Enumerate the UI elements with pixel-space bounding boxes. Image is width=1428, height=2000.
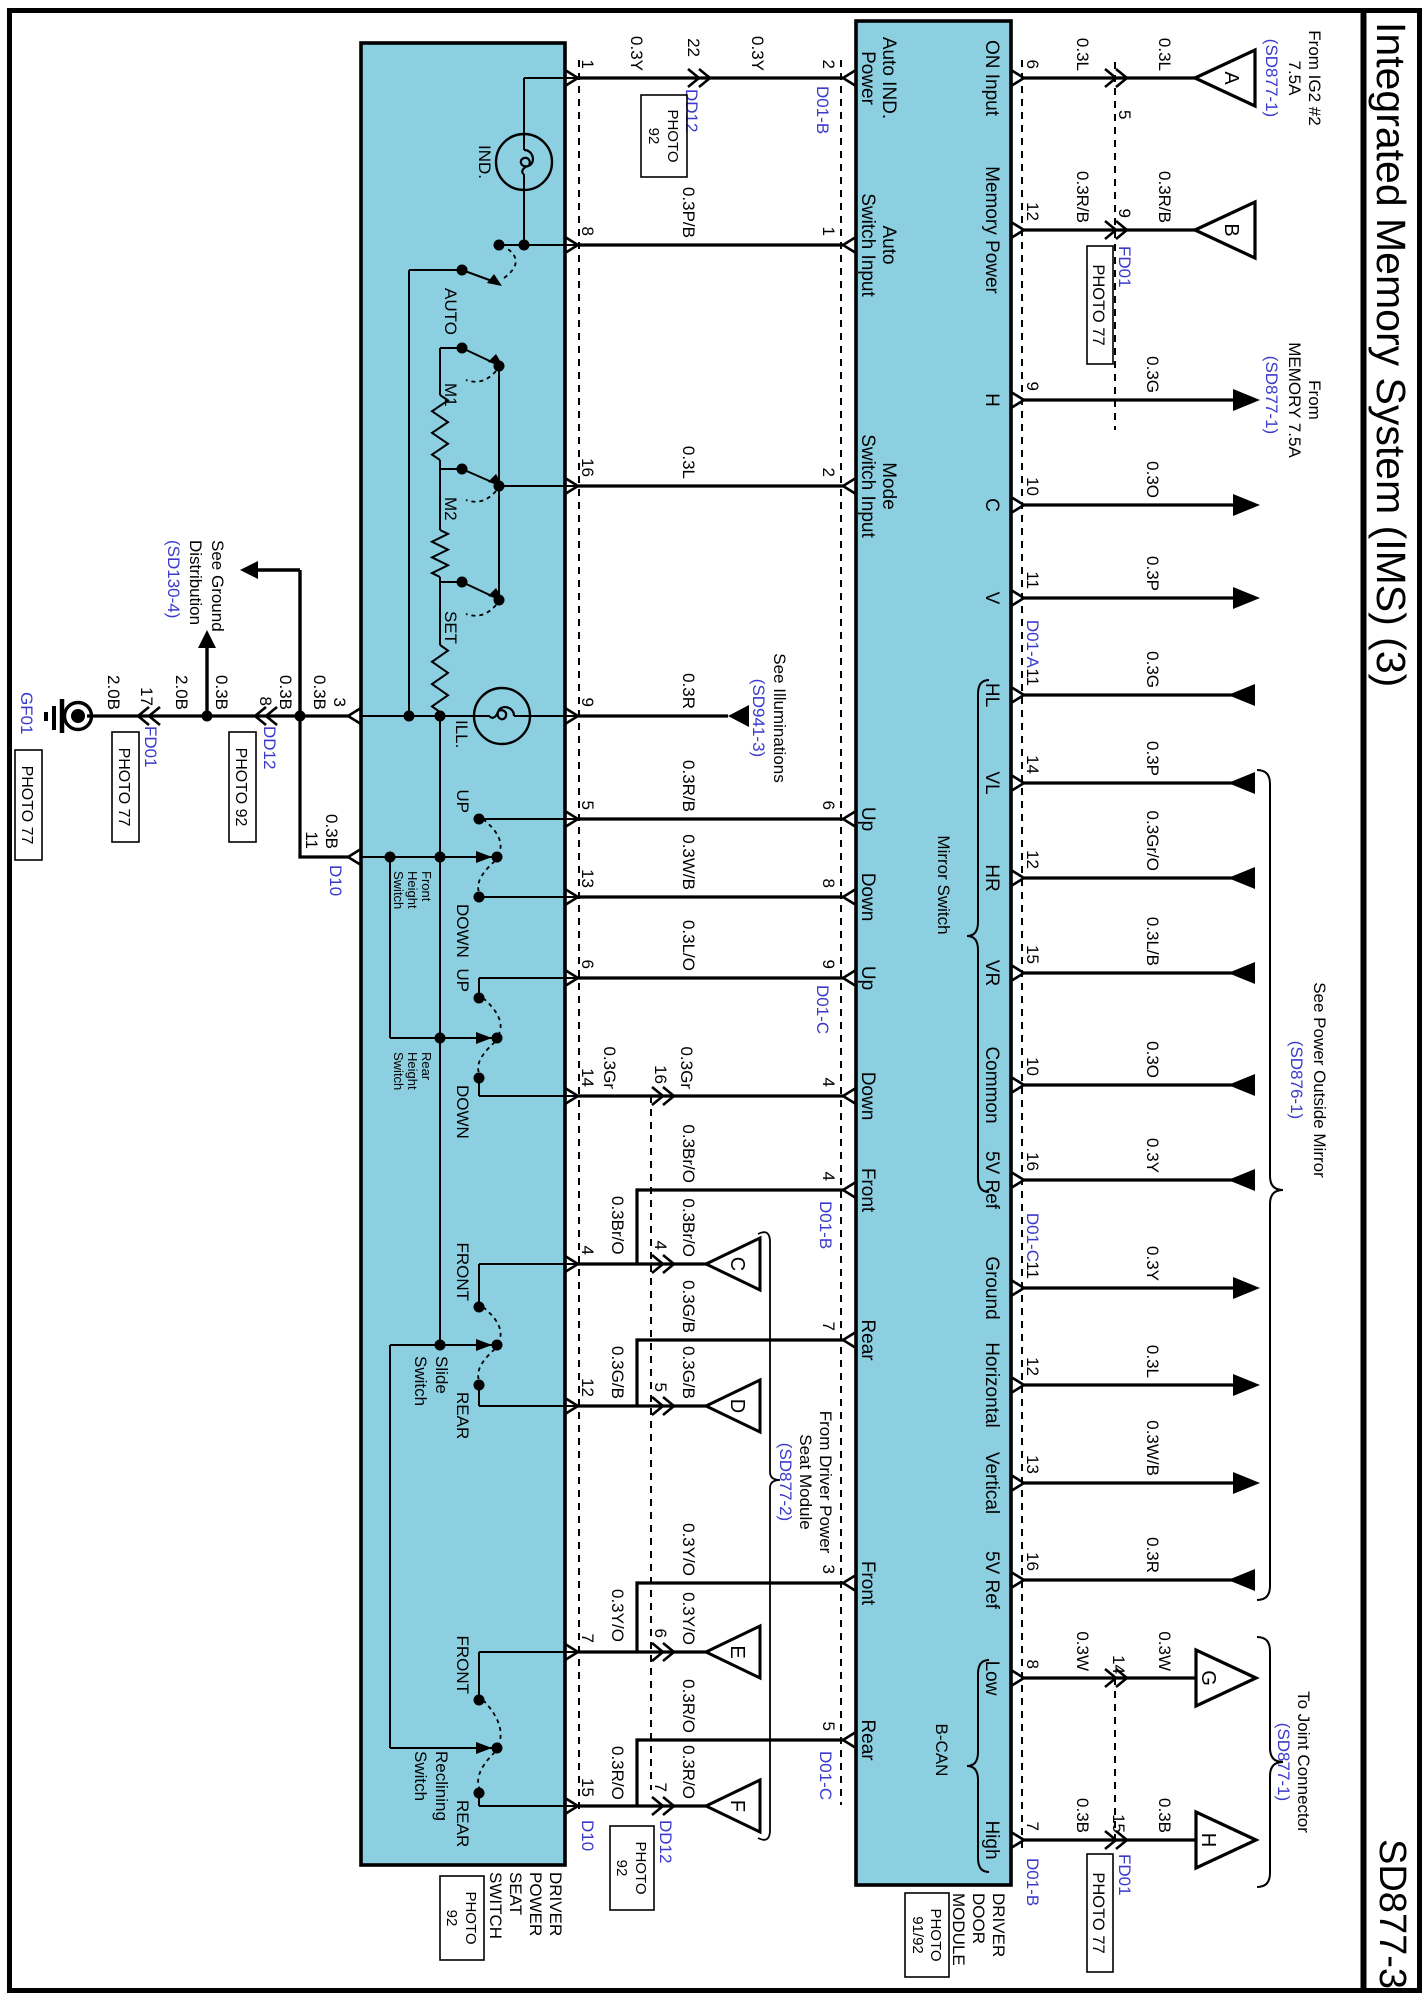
svg-text:HL: HL bbox=[981, 683, 1002, 707]
svg-text:7: 7 bbox=[578, 1634, 597, 1643]
svg-text:1: 1 bbox=[578, 60, 597, 69]
svg-text:Down: Down bbox=[857, 873, 878, 922]
svg-text:FD01: FD01 bbox=[141, 726, 160, 768]
svg-text:PHOTO 92: PHOTO 92 bbox=[232, 748, 249, 827]
svg-text:(SD877-1): (SD877-1) bbox=[1262, 356, 1281, 434]
svg-text:Vertical: Vertical bbox=[981, 1452, 1002, 1514]
svg-text:DRIVER: DRIVER bbox=[546, 1872, 565, 1936]
svg-text:0.3R: 0.3R bbox=[1143, 1537, 1162, 1573]
svg-text:IND.: IND. bbox=[475, 145, 494, 179]
svg-text:0.3L: 0.3L bbox=[1143, 1345, 1162, 1378]
svg-text:12: 12 bbox=[1023, 1357, 1042, 1376]
svg-text:0.3O: 0.3O bbox=[1143, 461, 1162, 498]
svg-text:8: 8 bbox=[1023, 1660, 1042, 1669]
svg-text:FRONT: FRONT bbox=[453, 1242, 472, 1301]
svg-text:2.0B: 2.0B bbox=[104, 675, 123, 710]
svg-text:PHOTO: PHOTO bbox=[927, 1908, 944, 1961]
svg-text:11: 11 bbox=[1023, 571, 1042, 589]
svg-text:MEMORY 7.5A: MEMORY 7.5A bbox=[1285, 342, 1304, 458]
svg-text:A: A bbox=[1220, 71, 1242, 85]
svg-text:0.3B: 0.3B bbox=[1155, 1798, 1174, 1833]
svg-text:0.3G/B: 0.3G/B bbox=[608, 1346, 627, 1399]
svg-text:GF01: GF01 bbox=[17, 692, 36, 735]
svg-text:0.3Y/O: 0.3Y/O bbox=[679, 1523, 698, 1576]
svg-text:SEAT: SEAT bbox=[506, 1872, 525, 1915]
svg-text:0.3Br/O: 0.3Br/O bbox=[608, 1196, 627, 1255]
svg-text:See Illuminations: See Illuminations bbox=[770, 653, 789, 782]
svg-text:ILL.: ILL. bbox=[452, 720, 471, 748]
svg-text:Up: Up bbox=[857, 966, 878, 990]
svg-text:0.3Gr: 0.3Gr bbox=[677, 1046, 696, 1089]
svg-text:12: 12 bbox=[578, 1378, 597, 1397]
svg-text:9: 9 bbox=[819, 960, 838, 969]
svg-text:0.3B: 0.3B bbox=[1073, 1798, 1092, 1833]
svg-text:SET: SET bbox=[441, 611, 460, 644]
svg-text:14: 14 bbox=[578, 1068, 597, 1087]
svg-text:2: 2 bbox=[819, 468, 838, 477]
svg-text:PHOTO: PHOTO bbox=[632, 1841, 649, 1894]
svg-text:ON Input: ON Input bbox=[981, 40, 1002, 117]
svg-text:0.3Y: 0.3Y bbox=[1143, 1138, 1162, 1173]
svg-text:G: G bbox=[1197, 1670, 1219, 1686]
svg-text:2.0B: 2.0B bbox=[172, 675, 191, 710]
svg-text:DOWN: DOWN bbox=[453, 1085, 472, 1139]
svg-text:5V Ref: 5V Ref bbox=[981, 1151, 1002, 1210]
svg-text:Rear: Rear bbox=[419, 1052, 434, 1081]
svg-text:13: 13 bbox=[578, 869, 597, 888]
svg-text:0.3W/B: 0.3W/B bbox=[679, 834, 698, 890]
svg-text:12: 12 bbox=[1023, 850, 1042, 869]
svg-text:0.3G/B: 0.3G/B bbox=[679, 1346, 698, 1399]
svg-text:0.3R/B: 0.3R/B bbox=[1073, 171, 1092, 223]
svg-text:D10: D10 bbox=[578, 1820, 597, 1851]
svg-text:Common: Common bbox=[981, 1046, 1002, 1123]
svg-text:6: 6 bbox=[651, 1629, 670, 1638]
svg-text:Power: Power bbox=[857, 51, 878, 106]
svg-text:7.5A: 7.5A bbox=[1285, 61, 1304, 97]
svg-text:0.3Y: 0.3Y bbox=[748, 36, 767, 71]
svg-text:E: E bbox=[726, 1645, 748, 1658]
svg-text:V: V bbox=[981, 592, 1002, 605]
svg-text:UP: UP bbox=[453, 968, 472, 992]
svg-text:HR: HR bbox=[981, 864, 1002, 891]
svg-text:5: 5 bbox=[651, 1383, 670, 1392]
svg-text:0.3G/B: 0.3G/B bbox=[679, 1280, 698, 1333]
svg-text:Slide: Slide bbox=[432, 1356, 451, 1394]
svg-text:D01-B: D01-B bbox=[813, 86, 832, 134]
svg-text:From IG2 #2: From IG2 #2 bbox=[1305, 30, 1324, 125]
svg-text:PHOTO 77: PHOTO 77 bbox=[115, 748, 132, 827]
svg-text:22: 22 bbox=[684, 38, 703, 57]
svg-text:5V Ref: 5V Ref bbox=[981, 1551, 1002, 1610]
svg-text:0.3R/B: 0.3R/B bbox=[679, 760, 698, 812]
svg-text:7: 7 bbox=[651, 1783, 670, 1792]
svg-text:0.3G: 0.3G bbox=[1143, 356, 1162, 393]
svg-text:0.3O: 0.3O bbox=[1143, 1041, 1162, 1078]
svg-text:0.3P: 0.3P bbox=[1143, 741, 1162, 776]
svg-text:9: 9 bbox=[578, 698, 597, 707]
svg-text:(SD130-4): (SD130-4) bbox=[164, 540, 183, 618]
svg-text:D01-B: D01-B bbox=[1023, 1858, 1042, 1906]
svg-text:Front: Front bbox=[419, 871, 434, 902]
svg-text:0.3Gr: 0.3Gr bbox=[600, 1046, 619, 1089]
svg-text:10: 10 bbox=[1023, 1057, 1042, 1076]
svg-text:92: 92 bbox=[645, 128, 662, 145]
svg-text:Rear: Rear bbox=[857, 1719, 878, 1761]
svg-text:9: 9 bbox=[1115, 209, 1134, 218]
svg-text:16: 16 bbox=[651, 1065, 670, 1084]
svg-text:M2: M2 bbox=[441, 497, 460, 521]
svg-text:B: B bbox=[1220, 223, 1242, 236]
svg-text:D10: D10 bbox=[326, 865, 345, 896]
svg-text:1: 1 bbox=[819, 227, 838, 236]
svg-text:16: 16 bbox=[578, 458, 597, 477]
svg-text:2: 2 bbox=[819, 60, 838, 69]
svg-text:Switch: Switch bbox=[391, 871, 406, 909]
svg-text:Reclining: Reclining bbox=[432, 1751, 451, 1821]
svg-text:Auto IND.: Auto IND. bbox=[878, 37, 899, 119]
svg-text:15: 15 bbox=[578, 1778, 597, 1797]
svg-text:0.3P: 0.3P bbox=[1143, 556, 1162, 591]
svg-text:0.3W: 0.3W bbox=[1073, 1631, 1092, 1671]
svg-text:92: 92 bbox=[613, 1860, 630, 1877]
svg-text:16: 16 bbox=[1023, 1152, 1042, 1171]
svg-text:UP: UP bbox=[453, 789, 472, 813]
svg-text:17: 17 bbox=[137, 687, 156, 706]
svg-text:4: 4 bbox=[578, 1246, 597, 1255]
svg-text:POWER: POWER bbox=[526, 1872, 545, 1936]
svg-text:0.3Y: 0.3Y bbox=[1143, 1246, 1162, 1281]
svg-text:0.3R/O: 0.3R/O bbox=[679, 1745, 698, 1799]
svg-text:13: 13 bbox=[1023, 1455, 1042, 1474]
svg-text:DD12: DD12 bbox=[656, 1820, 675, 1863]
svg-text:3: 3 bbox=[819, 1565, 838, 1574]
svg-text:B-CAN: B-CAN bbox=[932, 1724, 951, 1777]
svg-text:0.3Br/O: 0.3Br/O bbox=[679, 1124, 698, 1183]
svg-text:D01-A: D01-A bbox=[1023, 620, 1042, 669]
svg-text:14: 14 bbox=[1109, 1655, 1128, 1674]
svg-text:PHOTO 77: PHOTO 77 bbox=[18, 766, 35, 845]
svg-text:6: 6 bbox=[819, 801, 838, 810]
svg-text:From: From bbox=[1305, 380, 1324, 420]
svg-text:Rear: Rear bbox=[857, 1319, 878, 1361]
svg-text:5: 5 bbox=[578, 801, 597, 810]
svg-text:Height: Height bbox=[405, 871, 420, 909]
svg-text:8: 8 bbox=[819, 879, 838, 888]
svg-text:0.3B: 0.3B bbox=[212, 675, 231, 710]
svg-text:Auto: Auto bbox=[878, 225, 899, 264]
svg-text:Memory Power: Memory Power bbox=[981, 166, 1002, 294]
svg-text:Mirror Switch: Mirror Switch bbox=[934, 835, 953, 934]
svg-text:PHOTO: PHOTO bbox=[462, 1891, 479, 1944]
svg-text:SWITCH: SWITCH bbox=[486, 1872, 505, 1939]
svg-text:15: 15 bbox=[1109, 1814, 1128, 1833]
svg-text:D01-C: D01-C bbox=[816, 1751, 835, 1800]
svg-text:Switch: Switch bbox=[411, 1751, 430, 1801]
svg-text:3: 3 bbox=[330, 698, 349, 707]
svg-text:Front: Front bbox=[857, 1561, 878, 1606]
svg-text:(SD877-2): (SD877-2) bbox=[776, 1443, 795, 1521]
svg-text:4: 4 bbox=[651, 1241, 670, 1250]
svg-text:Horizontal: Horizontal bbox=[981, 1342, 1002, 1428]
svg-text:11: 11 bbox=[302, 831, 321, 849]
svg-text:0.3R/O: 0.3R/O bbox=[679, 1679, 698, 1733]
svg-text:Seat Module: Seat Module bbox=[796, 1434, 815, 1529]
svg-text:Integrated Memory System (IMS): Integrated Memory System (IMS) (3) bbox=[1368, 22, 1414, 687]
svg-text:0.3R/B: 0.3R/B bbox=[1155, 171, 1174, 223]
svg-text:0.3W/B: 0.3W/B bbox=[1143, 1420, 1162, 1476]
svg-text:H: H bbox=[981, 393, 1002, 407]
svg-text:0.3R/O: 0.3R/O bbox=[608, 1746, 627, 1800]
svg-text:4: 4 bbox=[819, 1172, 838, 1181]
svg-text:D: D bbox=[726, 1399, 748, 1413]
svg-text:Low: Low bbox=[981, 1661, 1002, 1696]
svg-text:High: High bbox=[981, 1820, 1002, 1859]
svg-text:F: F bbox=[726, 1800, 748, 1812]
svg-text:Mode: Mode bbox=[878, 462, 899, 510]
svg-text:0.3B: 0.3B bbox=[310, 675, 329, 710]
svg-text:0.3W: 0.3W bbox=[1155, 1631, 1174, 1671]
svg-text:Up: Up bbox=[857, 807, 878, 831]
svg-text:To Joint Connector: To Joint Connector bbox=[1294, 1691, 1313, 1833]
svg-text:0.3Gr/O: 0.3Gr/O bbox=[1143, 811, 1162, 871]
svg-text:4: 4 bbox=[819, 1078, 838, 1087]
svg-text:11: 11 bbox=[1023, 668, 1042, 686]
svg-text:12: 12 bbox=[1023, 202, 1042, 221]
svg-text:D01-C: D01-C bbox=[1023, 1213, 1042, 1262]
svg-text:DD12: DD12 bbox=[260, 726, 279, 769]
svg-text:H: H bbox=[1197, 1833, 1219, 1847]
svg-text:FRONT: FRONT bbox=[453, 1635, 472, 1694]
svg-text:0.3Br/O: 0.3Br/O bbox=[679, 1198, 698, 1257]
svg-text:PHOTO: PHOTO bbox=[664, 109, 681, 162]
svg-text:11: 11 bbox=[1023, 1261, 1042, 1279]
svg-text:15: 15 bbox=[1023, 945, 1042, 964]
svg-text:0.3L: 0.3L bbox=[1155, 38, 1174, 71]
svg-text:0.3R: 0.3R bbox=[679, 673, 698, 709]
svg-text:Switch: Switch bbox=[391, 1052, 406, 1090]
svg-text:Front: Front bbox=[857, 1168, 878, 1213]
svg-text:AUTO: AUTO bbox=[441, 288, 460, 335]
svg-text:(SD877-1): (SD877-1) bbox=[1274, 1723, 1293, 1801]
svg-text:6: 6 bbox=[578, 960, 597, 969]
svg-text:0.3Y/O: 0.3Y/O bbox=[679, 1592, 698, 1645]
svg-text:8: 8 bbox=[256, 697, 275, 706]
svg-text:(SD941-3): (SD941-3) bbox=[749, 679, 768, 757]
svg-text:6: 6 bbox=[1023, 60, 1042, 69]
svg-text:10: 10 bbox=[1023, 477, 1042, 496]
svg-text:From Driver Power: From Driver Power bbox=[816, 1411, 835, 1554]
svg-text:C: C bbox=[981, 498, 1002, 512]
svg-text:PHOTO 77: PHOTO 77 bbox=[1089, 1872, 1107, 1953]
svg-text:FD01: FD01 bbox=[1115, 246, 1134, 288]
svg-text:D01-C: D01-C bbox=[813, 985, 832, 1034]
svg-text:(SD876-1): (SD876-1) bbox=[1287, 1041, 1306, 1119]
svg-text:16: 16 bbox=[1023, 1552, 1042, 1571]
svg-text:FD01: FD01 bbox=[1115, 1854, 1134, 1896]
svg-text:D01-B: D01-B bbox=[816, 1201, 835, 1249]
svg-text:7: 7 bbox=[819, 1322, 838, 1331]
svg-text:0.3Y: 0.3Y bbox=[627, 36, 646, 71]
svg-text:0.3L/B: 0.3L/B bbox=[1143, 917, 1162, 966]
svg-text:0.3L: 0.3L bbox=[679, 446, 698, 479]
svg-text:Distribution: Distribution bbox=[186, 540, 205, 625]
svg-text:Down: Down bbox=[857, 1072, 878, 1121]
svg-text:0.3B: 0.3B bbox=[322, 814, 341, 849]
svg-text:DOWN: DOWN bbox=[453, 904, 472, 958]
svg-text:REAR: REAR bbox=[453, 1392, 472, 1439]
svg-text:7: 7 bbox=[1023, 1822, 1042, 1831]
svg-text:0.3Y/O: 0.3Y/O bbox=[608, 1589, 627, 1642]
svg-text:Ground: Ground bbox=[981, 1256, 1002, 1319]
svg-text:PHOTO 77: PHOTO 77 bbox=[1089, 264, 1107, 345]
svg-text:5: 5 bbox=[1115, 110, 1134, 119]
svg-text:Switch Input: Switch Input bbox=[857, 434, 878, 538]
svg-text:MODULE: MODULE bbox=[949, 1893, 968, 1966]
svg-text:14: 14 bbox=[1023, 755, 1042, 774]
svg-text:0.3L/O: 0.3L/O bbox=[679, 920, 698, 971]
svg-text:8: 8 bbox=[578, 227, 597, 236]
svg-text:SD877-3: SD877-3 bbox=[1371, 1839, 1413, 1989]
svg-text:VL: VL bbox=[981, 771, 1002, 794]
svg-text:0.3G: 0.3G bbox=[1143, 651, 1162, 688]
svg-text:92: 92 bbox=[443, 1910, 460, 1927]
svg-text:0.3L: 0.3L bbox=[1073, 38, 1092, 71]
svg-text:Switch: Switch bbox=[411, 1356, 430, 1406]
svg-text:Height: Height bbox=[405, 1052, 420, 1090]
svg-text:REAR: REAR bbox=[453, 1800, 472, 1847]
svg-text:9: 9 bbox=[1023, 382, 1042, 391]
svg-text:C: C bbox=[726, 1257, 748, 1271]
svg-text:See Power Outside Mirror: See Power Outside Mirror bbox=[1310, 982, 1329, 1178]
svg-text:DOOR: DOOR bbox=[969, 1893, 988, 1944]
svg-text:VR: VR bbox=[981, 960, 1002, 986]
svg-text:See Ground: See Ground bbox=[208, 540, 227, 632]
svg-text:DRIVER: DRIVER bbox=[989, 1893, 1008, 1957]
svg-text:0.3B: 0.3B bbox=[276, 675, 295, 710]
svg-text:(SD877-1): (SD877-1) bbox=[1262, 39, 1281, 117]
svg-text:0.3P/B: 0.3P/B bbox=[679, 187, 698, 238]
svg-text:5: 5 bbox=[819, 1722, 838, 1731]
svg-text:Switch Input: Switch Input bbox=[857, 193, 878, 297]
svg-text:91/92: 91/92 bbox=[909, 1916, 926, 1954]
